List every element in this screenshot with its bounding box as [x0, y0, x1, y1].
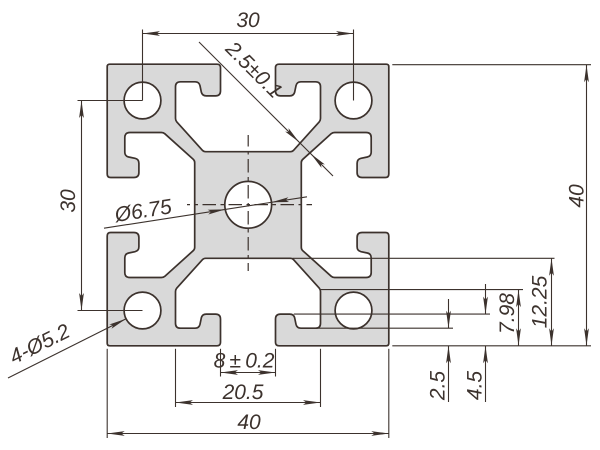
svg-text:20.5: 20.5: [222, 381, 264, 404]
svg-text:4.5: 4.5: [464, 371, 487, 401]
svg-text:2.5: 2.5: [427, 371, 450, 402]
svg-text:40: 40: [566, 184, 589, 208]
svg-text:7.98: 7.98: [496, 293, 519, 334]
svg-text:30: 30: [236, 9, 260, 32]
svg-text:30: 30: [57, 189, 80, 213]
svg-text:40: 40: [237, 411, 261, 434]
svg-text:12.25: 12.25: [529, 275, 552, 328]
svg-text:8 ± 0.2: 8 ± 0.2: [214, 350, 275, 373]
